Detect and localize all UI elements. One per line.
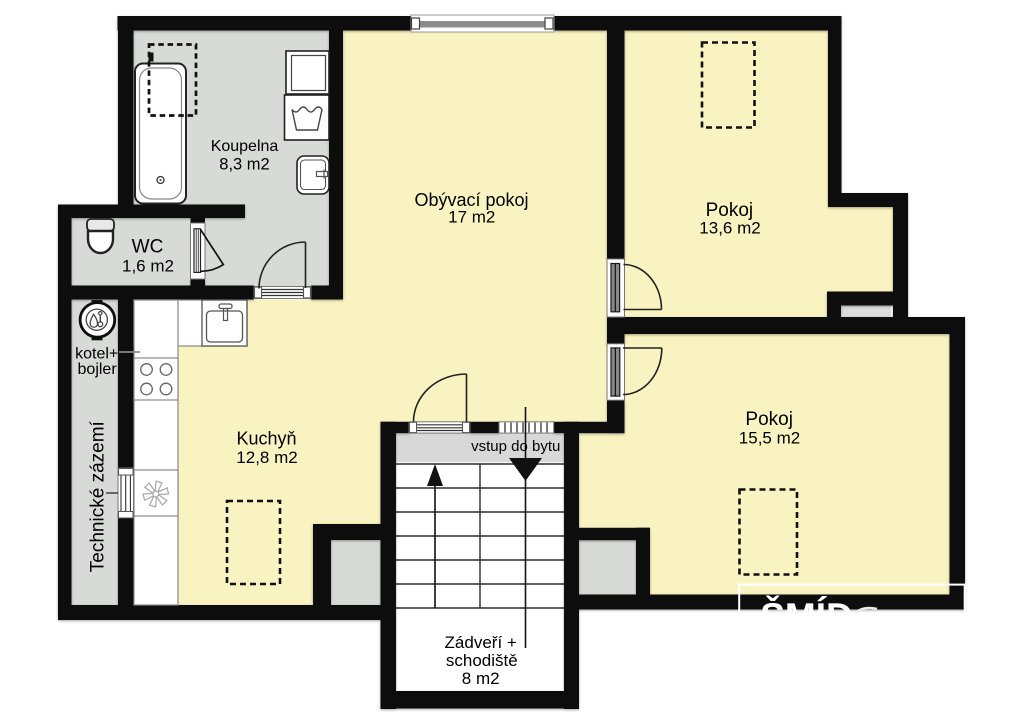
svg-text:Zádveří +: Zádveří + <box>445 633 517 652</box>
svg-text:ŠMÍD: ŠMÍD <box>760 595 853 637</box>
svg-text:1,6 m2: 1,6 m2 <box>122 257 174 276</box>
svg-text:schodiště: schodiště <box>446 651 518 670</box>
svg-text:12,8 m2: 12,8 m2 <box>236 448 297 467</box>
svg-text:Koupelna: Koupelna <box>211 138 279 155</box>
svg-text:8,3 m2: 8,3 m2 <box>219 156 269 174</box>
svg-text:17 m2: 17 m2 <box>448 208 495 227</box>
svg-text:vstup do bytu: vstup do bytu <box>471 438 560 455</box>
svg-text:8 m2: 8 m2 <box>462 669 500 688</box>
svg-text:Technické zázemí: Technické zázemí <box>88 420 109 572</box>
svg-text:WC: WC <box>132 236 164 257</box>
svg-text:Kuchyň: Kuchyň <box>236 429 296 449</box>
svg-text:Pokoj: Pokoj <box>745 409 793 430</box>
svg-text:15,5 m2: 15,5 m2 <box>739 429 800 448</box>
svg-text:bojler: bojler <box>78 361 118 378</box>
svg-text:13,6 m2: 13,6 m2 <box>699 219 760 238</box>
svg-text:kotel+: kotel+ <box>75 346 118 363</box>
